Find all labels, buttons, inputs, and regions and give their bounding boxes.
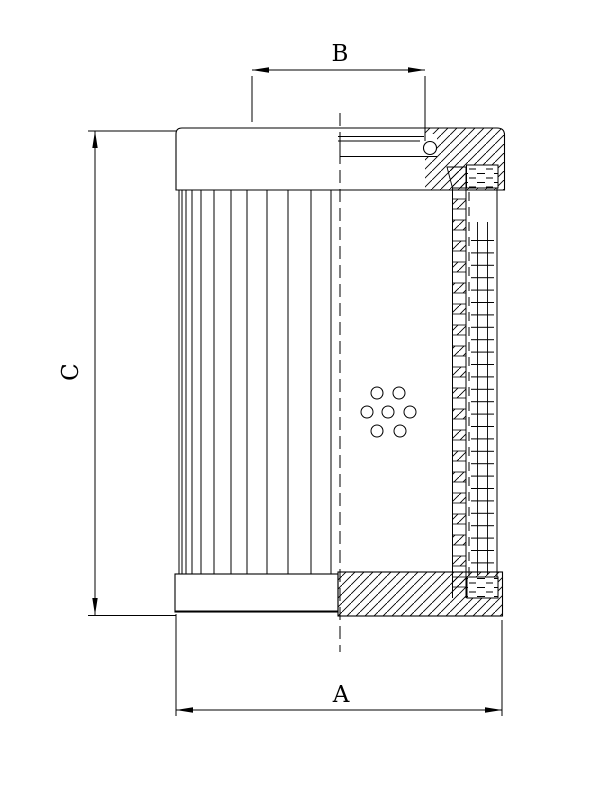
- bypass-hole: [404, 406, 416, 418]
- dimension-b-label: B: [332, 41, 349, 67]
- perf-segment: [453, 430, 467, 440]
- bypass-hole: [393, 387, 405, 399]
- perf-segment: [453, 262, 467, 272]
- perf-segment: [453, 325, 467, 335]
- dimension-b: B: [252, 41, 425, 141]
- bypass-hole: [361, 406, 373, 418]
- bottom-cap-left: [175, 574, 338, 612]
- arrowhead-left: [176, 707, 193, 712]
- perf-segment: [453, 367, 467, 377]
- bypass-holes: [361, 387, 416, 437]
- dimension-a-label: A: [332, 682, 350, 708]
- perf-segment: [453, 199, 467, 209]
- dimension-a: A: [176, 614, 502, 716]
- perf-segment: [453, 409, 467, 419]
- perf-segment: [453, 451, 467, 461]
- perf-segment: [453, 535, 467, 545]
- arrowhead-left: [252, 67, 269, 72]
- perf-segment: [453, 493, 467, 503]
- perf-segment: [453, 472, 467, 482]
- perf-segment: [453, 346, 467, 356]
- arrowhead-right: [408, 67, 425, 72]
- bottom-end-cap: [175, 572, 503, 616]
- core-tube-perforated: [447, 167, 466, 598]
- mesh-screen: [471, 188, 497, 577]
- pleated-media: [179, 190, 331, 574]
- arrowhead-right: [485, 707, 502, 712]
- top-seal: [467, 165, 499, 188]
- bypass-hole: [371, 387, 383, 399]
- filter-element-section-drawing: B C A: [0, 0, 612, 792]
- perf-segment: [453, 241, 467, 251]
- mesh-wire-rows: [471, 240, 494, 566]
- bypass-hole: [394, 425, 406, 437]
- perf-segment: [453, 556, 467, 566]
- perf-segment: [453, 220, 467, 230]
- perf-segment: [453, 304, 467, 314]
- bottom-seal: [467, 577, 498, 598]
- bypass-hole: [371, 425, 383, 437]
- perf-segment: [453, 514, 467, 524]
- dimension-c: C: [58, 131, 176, 616]
- arrowhead-top: [92, 131, 97, 148]
- perf-segment: [453, 388, 467, 398]
- bypass-hole: [382, 406, 394, 418]
- o-ring: [424, 142, 437, 155]
- dimension-c-label: C: [58, 363, 84, 381]
- perf-segment: [453, 283, 467, 293]
- arrowhead-bottom: [92, 598, 97, 615]
